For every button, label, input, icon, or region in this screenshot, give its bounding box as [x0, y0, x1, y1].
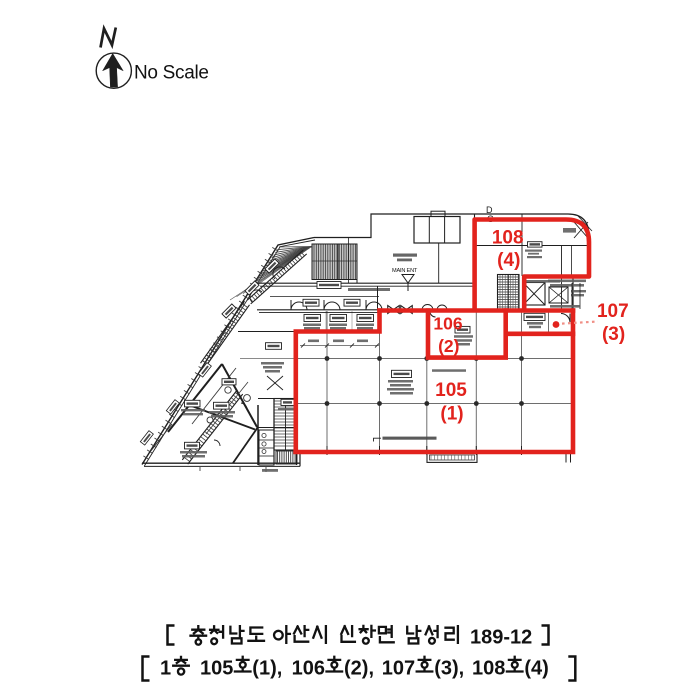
svg-text:No Scale: No Scale [134, 63, 209, 84]
svg-text:108: 108 [492, 228, 524, 249]
svg-text:107: 107 [597, 301, 629, 322]
svg-text:108: 108 [472, 658, 505, 680]
svg-text:(3),: (3), [434, 658, 464, 680]
svg-text:106: 106 [433, 313, 462, 333]
svg-text:MAIN ENT: MAIN ENT [392, 268, 418, 274]
svg-text:(3): (3) [602, 324, 625, 345]
svg-text:1: 1 [160, 658, 171, 680]
svg-text:189-12: 189-12 [470, 627, 532, 649]
svg-text:(4): (4) [524, 658, 548, 680]
svg-text:105: 105 [435, 380, 467, 401]
svg-text:105: 105 [200, 658, 233, 680]
svg-text:(1),: (1), [252, 658, 282, 680]
svg-text:(2): (2) [438, 336, 459, 356]
svg-text:106: 106 [292, 658, 325, 680]
svg-text:(2),: (2), [344, 658, 374, 680]
svg-text:(1): (1) [440, 404, 463, 425]
svg-text:(4): (4) [497, 250, 520, 271]
svg-text:107: 107 [382, 658, 415, 680]
